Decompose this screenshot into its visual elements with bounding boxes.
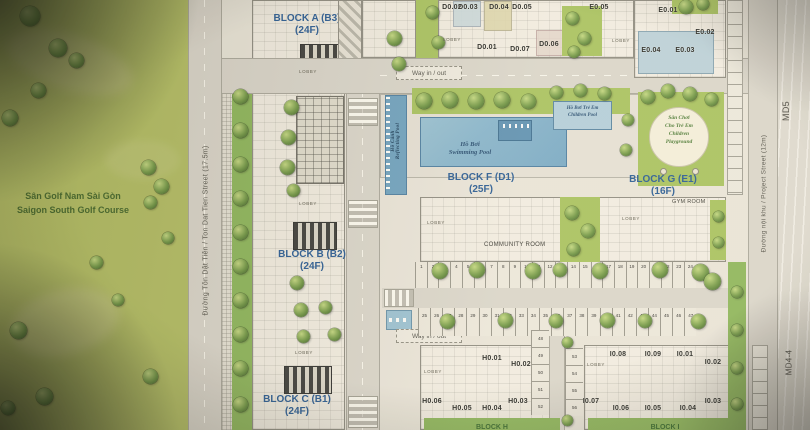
unit-label: D0.05 (512, 4, 532, 11)
unit-label: E0.04 (641, 47, 660, 54)
unit-label: H0.01 (482, 355, 502, 362)
site-plan-photo: { "golf": { "name_vi": "Sân Golf Nam Sài… (0, 0, 810, 430)
unit-label: I0.04 (680, 405, 697, 412)
lobby-label: LOBBY (587, 362, 605, 367)
unit-label: D0.07 (510, 46, 530, 53)
unit-label: I0.06 (613, 405, 630, 412)
lobby-label: LOBBY (612, 38, 630, 43)
lobby-label: LOBBY (443, 37, 461, 42)
unit-label: E0.05 (589, 4, 608, 11)
unit-label: E0.02 (695, 29, 714, 36)
unit-label: I0.02 (705, 359, 722, 366)
unit-label: I0.08 (610, 351, 627, 358)
unit-label: D0.03 (458, 4, 478, 11)
unit-label: I0.01 (677, 351, 694, 358)
unit-label: E0.03 (675, 47, 694, 54)
lobby-label: LOBBY (424, 369, 442, 374)
lobby-label: LOBBY (427, 220, 445, 225)
unit-label: H0.05 (452, 405, 472, 412)
unit-label: I0.07 (583, 398, 600, 405)
unit-label: D0.01 (477, 44, 497, 51)
unit-label: I0.09 (645, 351, 662, 358)
unit-label: I0.03 (705, 398, 722, 405)
unit-label: D0.06 (539, 41, 559, 48)
lobby-label: LOBBY (622, 216, 640, 221)
unit-label: I0.05 (645, 405, 662, 412)
unit-label: H0.04 (482, 405, 502, 412)
labels-layer: D0.02D0.03D0.04D0.05D0.01D0.07D0.06E0.05… (0, 0, 810, 430)
lobby-label: LOBBY (299, 69, 317, 74)
unit-label: H0.02 (511, 361, 531, 368)
lobby-label: LOBBY (295, 350, 313, 355)
unit-label: H0.06 (422, 398, 442, 405)
lobby-label: LOBBY (299, 201, 317, 206)
unit-label: E0.01 (658, 7, 677, 14)
unit-label: D0.04 (489, 4, 509, 11)
unit-label: H0.03 (508, 398, 528, 405)
master-plan-map: Sân Golf Nam Sài Gòn Saigon South Golf C… (0, 0, 810, 430)
